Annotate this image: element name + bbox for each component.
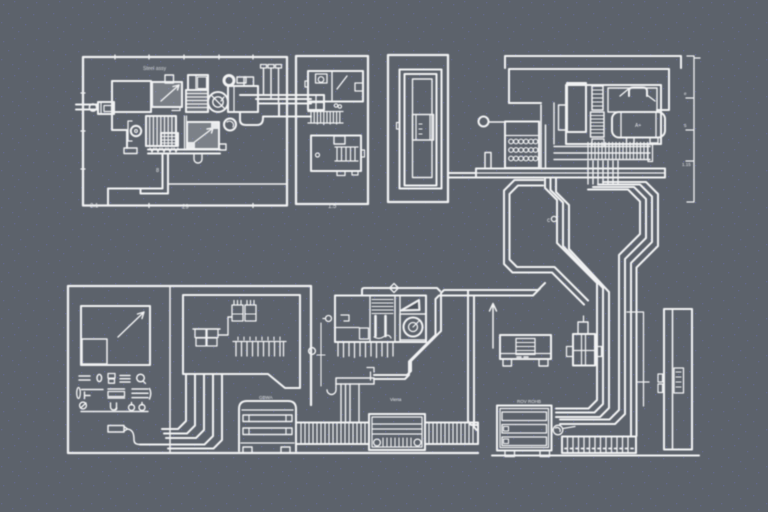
svg-text:A+: A+: [635, 123, 641, 129]
svg-text:8: 8: [156, 168, 159, 174]
svg-text:1.5: 1.5: [328, 204, 337, 210]
svg-text:1.15: 1.15: [682, 162, 691, 167]
svg-text:ROV ROHB: ROV ROHB: [517, 399, 541, 404]
svg-text:29: 29: [182, 205, 189, 211]
svg-text:Viena: Viena: [390, 397, 402, 402]
svg-text:c: c: [547, 218, 550, 224]
svg-text:2.1: 2.1: [90, 204, 99, 210]
svg-text:GBWA: GBWA: [259, 395, 273, 400]
svg-text:Steel assy: Steel assy: [143, 66, 167, 72]
